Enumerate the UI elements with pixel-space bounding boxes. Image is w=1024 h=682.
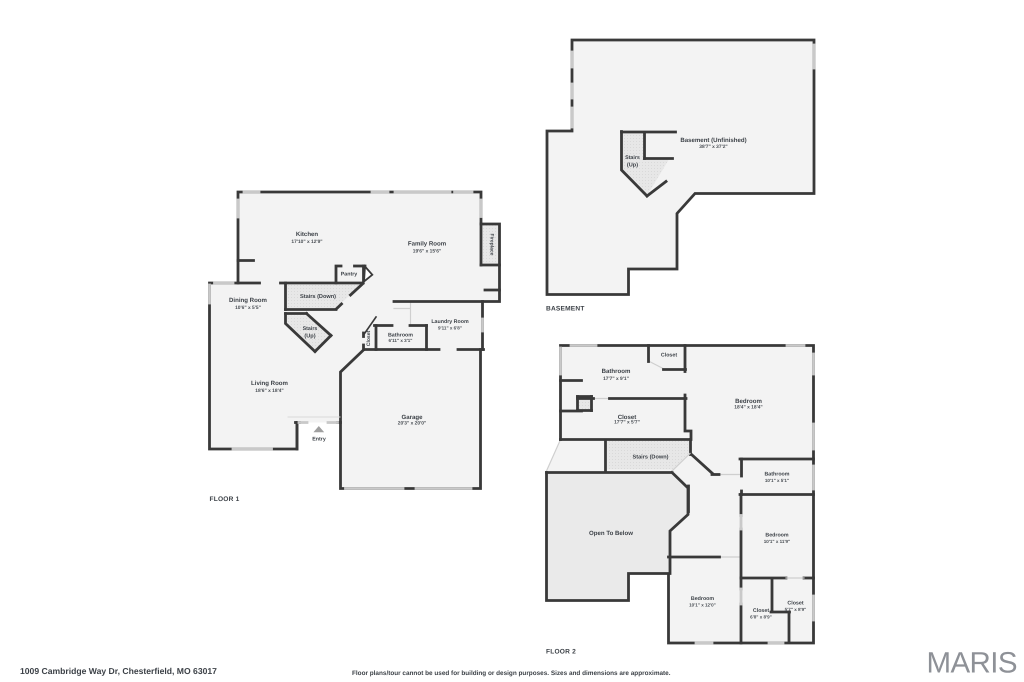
svg-text:Bedroom: Bedroom bbox=[765, 533, 789, 539]
svg-text:Kitchen: Kitchen bbox=[296, 231, 319, 238]
svg-text:19'6" x 15'6": 19'6" x 15'6" bbox=[413, 249, 441, 255]
svg-text:Bathroom: Bathroom bbox=[764, 472, 789, 478]
svg-text:(Up): (Up) bbox=[304, 333, 315, 340]
svg-text:Family Room: Family Room bbox=[408, 241, 447, 248]
svg-text:Closet: Closet bbox=[366, 331, 372, 347]
svg-text:Closet: Closet bbox=[753, 608, 769, 614]
svg-text:10'1" x 12'0": 10'1" x 12'0" bbox=[689, 603, 716, 608]
svg-text:9'11" x 6'8": 9'11" x 6'8" bbox=[438, 326, 462, 331]
svg-text:Living Room: Living Room bbox=[251, 380, 288, 387]
svg-text:17'7" x 9'1": 17'7" x 9'1" bbox=[603, 376, 629, 382]
svg-text:10'6" x 5'5": 10'6" x 5'5" bbox=[235, 305, 261, 311]
svg-text:Fireplace: Fireplace bbox=[488, 234, 494, 256]
svg-text:10'1" x 11'9": 10'1" x 11'9" bbox=[764, 539, 790, 544]
svg-text:10'1" x 5'1": 10'1" x 5'1" bbox=[765, 478, 789, 483]
svg-text:Pantry: Pantry bbox=[341, 272, 358, 278]
svg-text:18'4" x 18'4": 18'4" x 18'4" bbox=[734, 405, 762, 411]
svg-text:(Up): (Up) bbox=[627, 162, 638, 169]
svg-text:1009 Cambridge Way Dr, Chester: 1009 Cambridge Way Dr, Chesterfield, MO … bbox=[20, 666, 217, 676]
svg-text:Laundry Room: Laundry Room bbox=[431, 319, 469, 325]
svg-text:Closet: Closet bbox=[787, 601, 803, 607]
svg-text:38'7" x 37'2": 38'7" x 37'2" bbox=[699, 144, 727, 150]
svg-text:Garage: Garage bbox=[401, 414, 423, 421]
svg-text:Entry: Entry bbox=[312, 437, 326, 443]
svg-text:Stairs: Stairs bbox=[303, 326, 318, 332]
svg-text:Stairs (Down): Stairs (Down) bbox=[300, 293, 336, 300]
svg-text:Basement (Unfinished): Basement (Unfinished) bbox=[680, 137, 746, 144]
svg-text:Dining Room: Dining Room bbox=[229, 297, 267, 304]
svg-text:Floor plans/tour cannot be use: Floor plans/tour cannot be used for buil… bbox=[352, 670, 671, 677]
svg-text:Bathroom: Bathroom bbox=[602, 368, 631, 375]
svg-text:17'10" x 12'9": 17'10" x 12'9" bbox=[291, 239, 322, 245]
svg-text:17'7" x 5'7": 17'7" x 5'7" bbox=[614, 420, 640, 426]
svg-text:Bedroom: Bedroom bbox=[735, 398, 762, 405]
svg-text:Closet: Closet bbox=[661, 353, 677, 359]
svg-text:FLOOR 1: FLOOR 1 bbox=[210, 496, 240, 503]
svg-text:6'11" x 3'1": 6'11" x 3'1" bbox=[389, 338, 413, 343]
svg-text:FLOOR 2: FLOOR 2 bbox=[546, 649, 576, 656]
svg-text:Stairs (Down): Stairs (Down) bbox=[632, 454, 668, 461]
svg-text:Stairs: Stairs bbox=[625, 155, 640, 161]
svg-text:18'6" x 18'4": 18'6" x 18'4" bbox=[255, 388, 283, 394]
svg-text:Bedroom: Bedroom bbox=[691, 596, 715, 602]
svg-text:Open To Below: Open To Below bbox=[589, 530, 633, 537]
svg-text:5'7" x 8'9": 5'7" x 8'9" bbox=[785, 607, 807, 612]
svg-text:20'3" x 20'0": 20'3" x 20'0" bbox=[398, 421, 426, 427]
svg-text:6'8" x 8'9": 6'8" x 8'9" bbox=[750, 615, 772, 620]
svg-text:BASEMENT: BASEMENT bbox=[546, 306, 585, 313]
svg-text:MARIS: MARIS bbox=[927, 647, 1017, 680]
